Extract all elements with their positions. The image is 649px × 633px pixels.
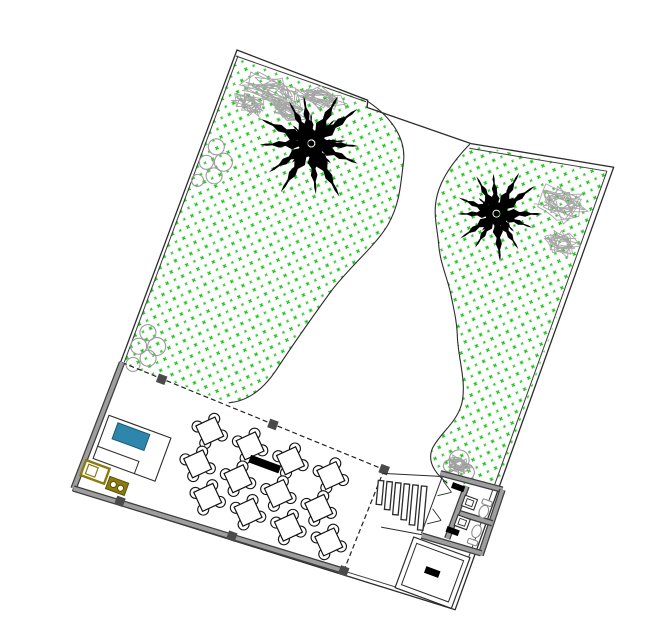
dining-table-set: [186, 407, 234, 455]
stair-tread: [376, 480, 384, 504]
cooktop-unit: [105, 476, 128, 495]
stair-tread: [401, 484, 410, 520]
stair-tread: [409, 485, 418, 525]
structural-column: [267, 419, 279, 431]
door-swing: [430, 509, 444, 521]
stair-tread: [393, 483, 401, 515]
toilet-tank: [467, 538, 478, 546]
dining-table-set: [307, 452, 355, 500]
site-plan-drawing: [0, 0, 649, 633]
stair-tread: [384, 482, 392, 510]
site-plan-page: [0, 0, 649, 633]
site-group: [73, 31, 622, 631]
dining-table-set: [267, 437, 315, 485]
